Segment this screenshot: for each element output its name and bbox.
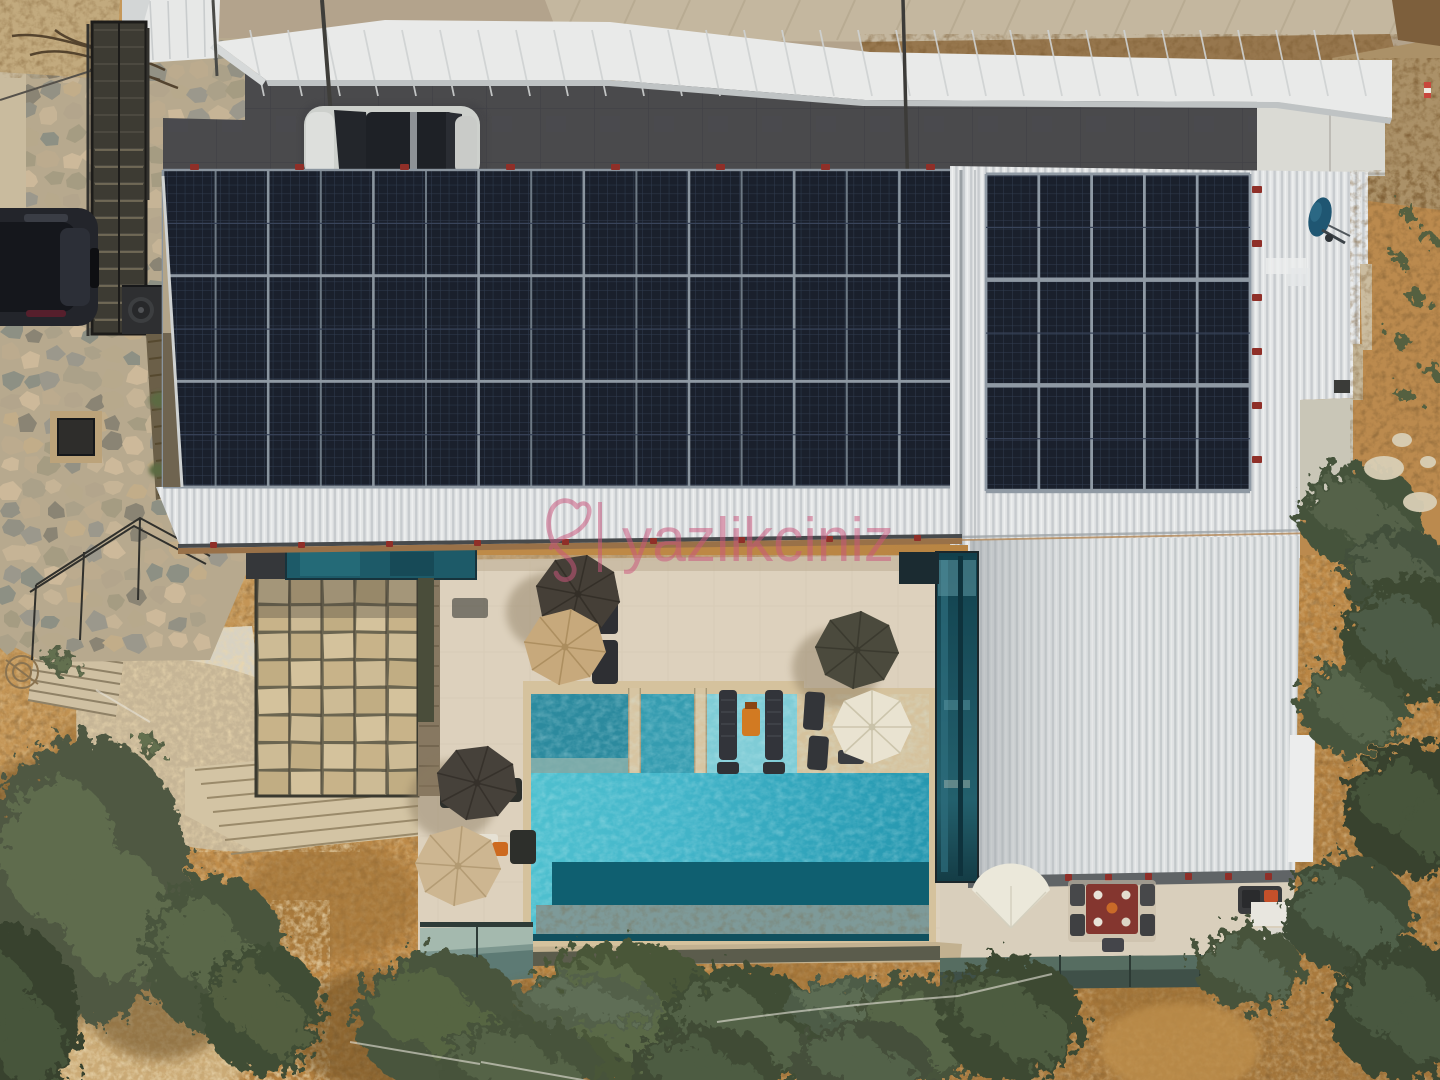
svg-text:yazlikciniz: yazlikciniz [622,506,894,575]
